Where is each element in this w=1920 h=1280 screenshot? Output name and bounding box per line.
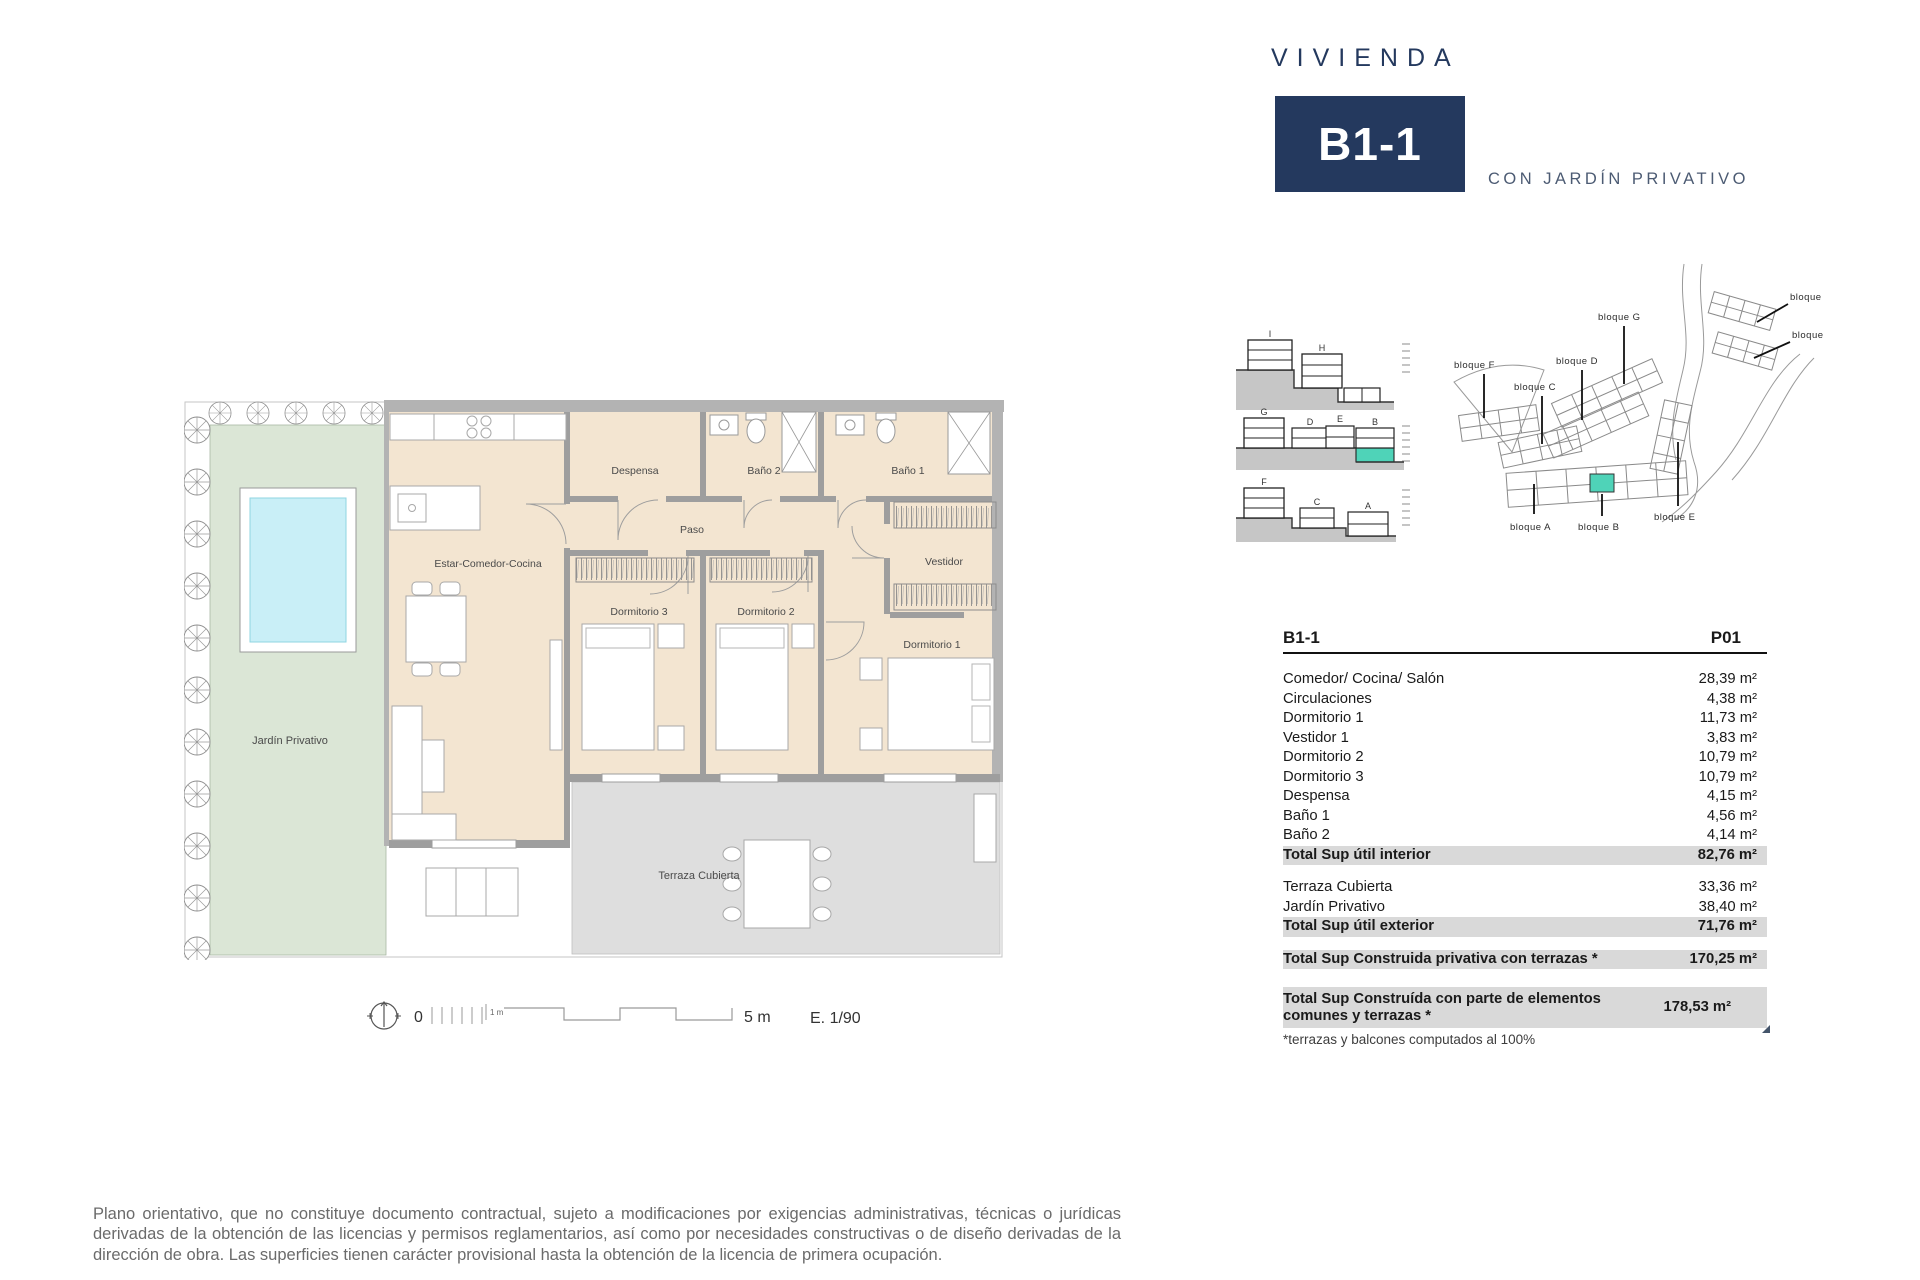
row-value: 4,15 m²	[1639, 787, 1767, 807]
svg-text:F: F	[1261, 477, 1267, 487]
row-label: Total Sup útil exterior	[1283, 917, 1639, 937]
tree-icon	[209, 402, 231, 424]
area-table: B1-1 P01 Comedor/ Cocina/ Salón28,39 m²C…	[1283, 628, 1767, 1047]
tree-icon	[285, 402, 307, 424]
svg-text:E: E	[1337, 414, 1343, 424]
tree-icon	[184, 469, 210, 495]
room-label-living: Estar-Comedor-Cocina	[434, 558, 542, 570]
svg-text:bloque F: bloque F	[1454, 360, 1495, 371]
svg-text:bloque H: bloque H	[1792, 330, 1824, 341]
row-label: Total Sup Construida privativa con terra…	[1283, 950, 1639, 970]
svg-text:G: G	[1260, 407, 1267, 417]
section-row-1: I H	[1236, 330, 1410, 410]
row-label: Baño 2	[1283, 826, 1639, 846]
row-value: 10,79 m²	[1639, 748, 1767, 768]
svg-text:D: D	[1307, 417, 1314, 427]
tree-icon	[184, 833, 210, 859]
site-labels: bloque F bloque C bloque D bloque G bloq…	[1454, 292, 1824, 533]
unit-subtitle: CON JARDÍN PRIVATIVO	[1488, 170, 1749, 189]
tree-icon	[184, 937, 210, 960]
table-row: Jardín Privativo38,40 m²	[1283, 898, 1767, 918]
scale-steps	[504, 1008, 732, 1020]
row-label: Dormitorio 2	[1283, 748, 1639, 768]
row-label: Dormitorio 1	[1283, 709, 1639, 729]
brand-title: VIVIENDA	[1271, 44, 1460, 73]
table-spacer	[1283, 969, 1767, 987]
wall-left	[384, 412, 389, 846]
row-value: 3,83 m²	[1639, 729, 1767, 749]
svg-text:bloque A: bloque A	[1510, 522, 1551, 533]
area-table-body: Comedor/ Cocina/ Salón28,39 m²Circulacio…	[1283, 670, 1767, 1028]
section-diagrams: I H G D E B	[1236, 330, 1446, 542]
tree-icon	[184, 885, 210, 911]
room-label-pantry: Despensa	[611, 465, 658, 477]
scale-zero: 0	[414, 1009, 423, 1026]
row-label: Vestidor 1	[1283, 729, 1639, 749]
row-label: Total Sup útil interior	[1283, 846, 1639, 866]
svg-text:C: C	[1314, 497, 1321, 507]
room-label-bath1: Baño 1	[891, 465, 924, 477]
table-row: Terraza Cubierta33,36 m²	[1283, 878, 1767, 898]
row-label: Terraza Cubierta	[1283, 878, 1639, 898]
table-spacer	[1283, 937, 1767, 950]
scale-ratio: E. 1/90	[810, 1010, 861, 1027]
row-value: 4,14 m²	[1639, 826, 1767, 846]
north-compass-icon	[367, 1002, 401, 1029]
row-value: 4,38 m²	[1639, 690, 1767, 710]
area-table-header: B1-1 P01	[1283, 628, 1767, 654]
row-value: 33,36 m²	[1639, 878, 1767, 898]
table-row: Dormitorio 210,79 m²	[1283, 748, 1767, 768]
site-leader-lines	[1484, 304, 1790, 516]
room-label-bedroom1: Dormitorio 1	[903, 639, 960, 651]
row-value: 71,76 m²	[1639, 917, 1767, 937]
table-row: Dormitorio 111,73 m²	[1283, 709, 1767, 729]
table-floor-column: P01	[1711, 628, 1767, 648]
table-row: Comedor/ Cocina/ Salón28,39 m²	[1283, 670, 1767, 690]
comment-marker	[1762, 1025, 1770, 1033]
row-value: 28,39 m²	[1639, 670, 1767, 690]
table-unit-column: B1-1	[1283, 628, 1320, 648]
room-label-bath2: Baño 2	[747, 465, 780, 477]
row-value: 170,25 m²	[1639, 950, 1767, 970]
tree-icon	[184, 521, 210, 547]
row-value: 10,79 m²	[1639, 768, 1767, 788]
tree-icon	[184, 781, 210, 807]
pool	[240, 488, 356, 652]
site-roads	[1454, 264, 1814, 522]
floor-plan: Estar-Comedor-Cocina Despensa Baño 2 Bañ…	[184, 400, 1004, 960]
row-value: 11,73 m²	[1639, 709, 1767, 729]
highlighted-unit-section	[1356, 448, 1394, 462]
room-label-terrace: Terraza Cubierta	[658, 870, 740, 882]
table-spacer	[1283, 865, 1767, 878]
row-label: Circulaciones	[1283, 690, 1639, 710]
row-label: Dormitorio 3	[1283, 768, 1639, 788]
room-label-bedroom2: Dormitorio 2	[737, 606, 794, 618]
section-row-3: F C A	[1236, 477, 1410, 542]
tree-icon	[247, 402, 269, 424]
unit-badge: B1-1	[1275, 96, 1465, 192]
tree-icon	[184, 729, 210, 755]
tree-icon	[184, 417, 210, 443]
table-row: Total Sup Construída con parte de elemen…	[1283, 987, 1767, 1028]
unit-code: B1-1	[1318, 117, 1422, 171]
svg-text:bloque I: bloque I	[1790, 292, 1824, 303]
table-row: Dormitorio 310,79 m²	[1283, 768, 1767, 788]
svg-text:bloque B: bloque B	[1578, 522, 1620, 533]
site-buildings	[1459, 292, 1778, 508]
tree-icon	[184, 625, 210, 651]
svg-text:bloque D: bloque D	[1556, 356, 1598, 367]
room-label-garden: Jardín Privativo	[252, 735, 328, 747]
row-label: Total Sup Construída con parte de elemen…	[1283, 987, 1613, 1028]
scale-five-m: 5 m	[744, 1009, 771, 1026]
tree-icon	[184, 573, 210, 599]
row-label: Baño 1	[1283, 807, 1639, 827]
scale-bar: 0 1 m 5 m E. 1/90	[364, 990, 884, 1040]
svg-text:bloque E: bloque E	[1654, 512, 1696, 523]
scale-ticks	[432, 1007, 482, 1024]
table-row: Baño 24,14 m²	[1283, 826, 1767, 846]
table-row: Total Sup útil exterior71,76 m²	[1283, 917, 1767, 937]
row-value: 178,53 m²	[1613, 998, 1741, 1018]
svg-text:bloque C: bloque C	[1514, 382, 1556, 393]
svg-text:H: H	[1319, 343, 1326, 353]
row-label: Comedor/ Cocina/ Salón	[1283, 670, 1639, 690]
svg-text:bloque G: bloque G	[1598, 312, 1641, 323]
room-label-hall: Paso	[680, 524, 704, 536]
tree-icon	[361, 402, 383, 424]
row-value: 38,40 m²	[1639, 898, 1767, 918]
row-label: Despensa	[1283, 787, 1639, 807]
plan-sheet-page: VIVIENDA B1-1 CON JARDÍN PRIVATIVO	[0, 0, 1920, 1280]
section-row-2: G D E B	[1236, 407, 1410, 470]
svg-text:I: I	[1269, 330, 1272, 339]
legal-disclaimer: Plano orientativo, que no constituye doc…	[93, 1204, 1121, 1265]
table-row: Vestidor 13,83 m²	[1283, 729, 1767, 749]
table-row: Despensa4,15 m²	[1283, 787, 1767, 807]
row-label: Jardín Privativo	[1283, 898, 1639, 918]
svg-text:B: B	[1372, 417, 1378, 427]
wall-top	[384, 400, 1004, 412]
table-row: Total Sup útil interior82,76 m²	[1283, 846, 1767, 866]
table-row: Total Sup Construida privativa con terra…	[1283, 950, 1767, 970]
table-footnote: *terrazas y balcones computados al 100%	[1283, 1032, 1767, 1047]
row-value: 82,76 m²	[1639, 846, 1767, 866]
highlighted-unit-site	[1590, 474, 1614, 492]
tree-icon	[323, 402, 345, 424]
row-value: 4,56 m²	[1639, 807, 1767, 827]
tree-icon	[184, 677, 210, 703]
room-label-bedroom3: Dormitorio 3	[610, 606, 667, 618]
site-plan: bloque F bloque C bloque D bloque G bloq…	[1452, 262, 1824, 570]
table-row: Baño 14,56 m²	[1283, 807, 1767, 827]
table-row: Circulaciones4,38 m²	[1283, 690, 1767, 710]
svg-text:A: A	[1365, 501, 1371, 511]
scale-one-m: 1 m	[490, 1008, 504, 1017]
room-label-dressing: Vestidor	[925, 556, 963, 568]
